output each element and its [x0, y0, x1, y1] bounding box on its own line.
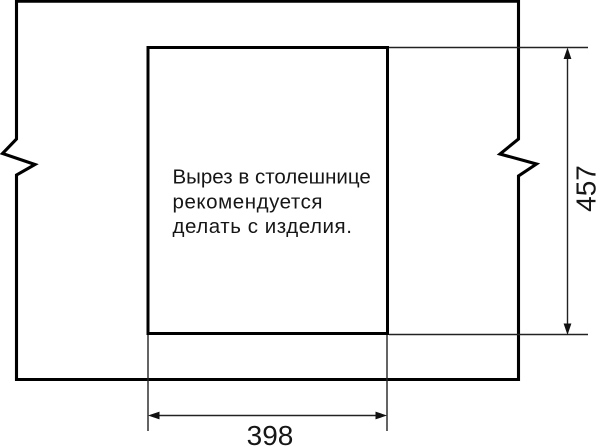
svg-text:Вырез в столешнице: Вырез в столешнице [173, 166, 371, 189]
svg-text:457: 457 [571, 165, 600, 212]
svg-text:398: 398 [247, 420, 294, 447]
svg-text:делать с изделия.: делать с изделия. [173, 215, 353, 238]
svg-text:рекомендуется: рекомендуется [173, 190, 324, 213]
